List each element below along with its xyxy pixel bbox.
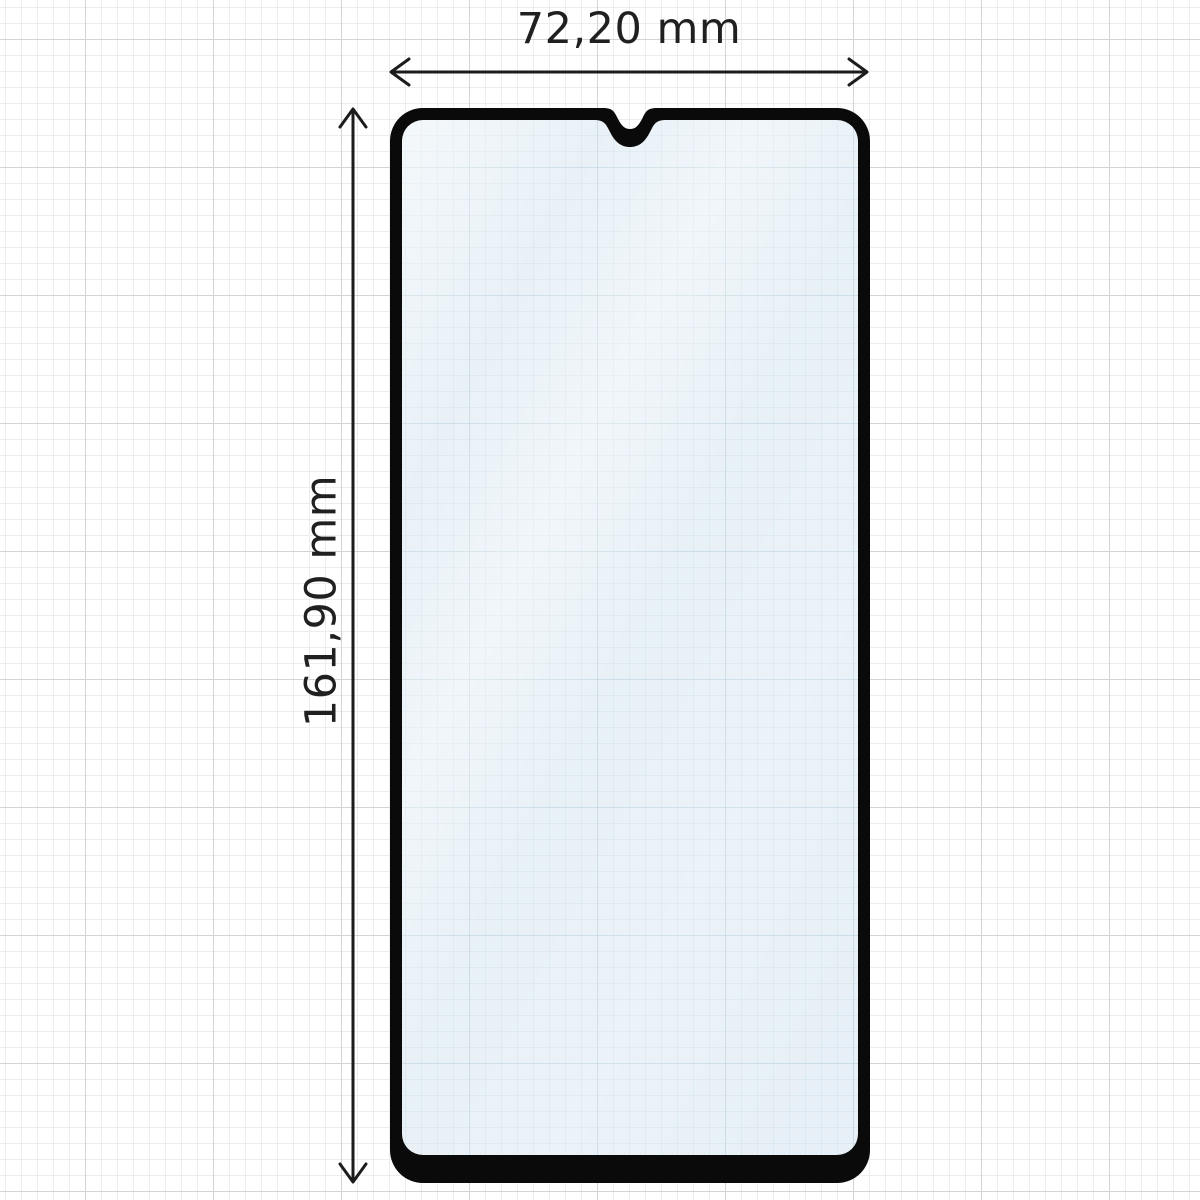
width-dimension-arrow: [391, 59, 867, 85]
height-dimension-label: 161,90 mm: [301, 475, 344, 727]
graph-paper-background: 72,20 mm 161,90 mm: [0, 0, 1200, 1200]
screen-protector-dimension-diagram: [0, 0, 1200, 1200]
screen-protector: [390, 108, 870, 1183]
glass-sheen: [402, 120, 858, 1155]
width-dimension-label: 72,20 mm: [517, 8, 742, 51]
